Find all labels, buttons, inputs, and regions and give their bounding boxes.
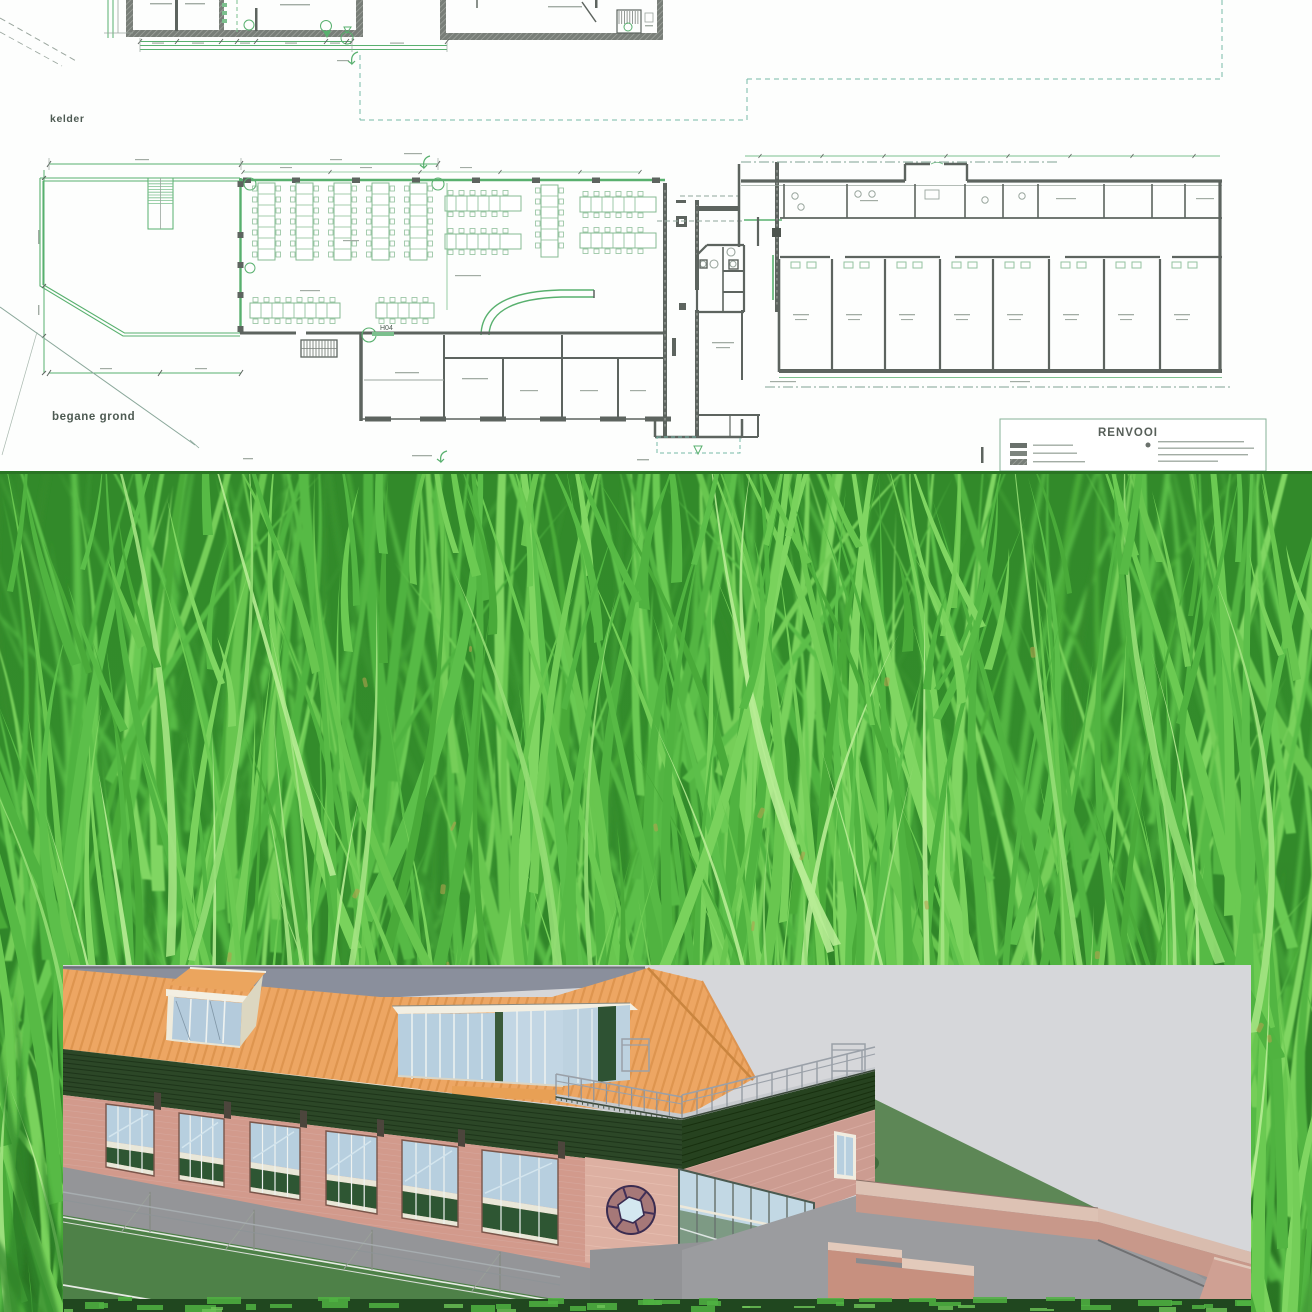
svg-text:kelder: kelder bbox=[50, 113, 85, 125]
svg-text:begane grond: begane grond bbox=[52, 411, 135, 423]
svg-text:H04: H04 bbox=[380, 325, 393, 332]
svg-text:RENVOOI: RENVOOI bbox=[1098, 427, 1158, 439]
